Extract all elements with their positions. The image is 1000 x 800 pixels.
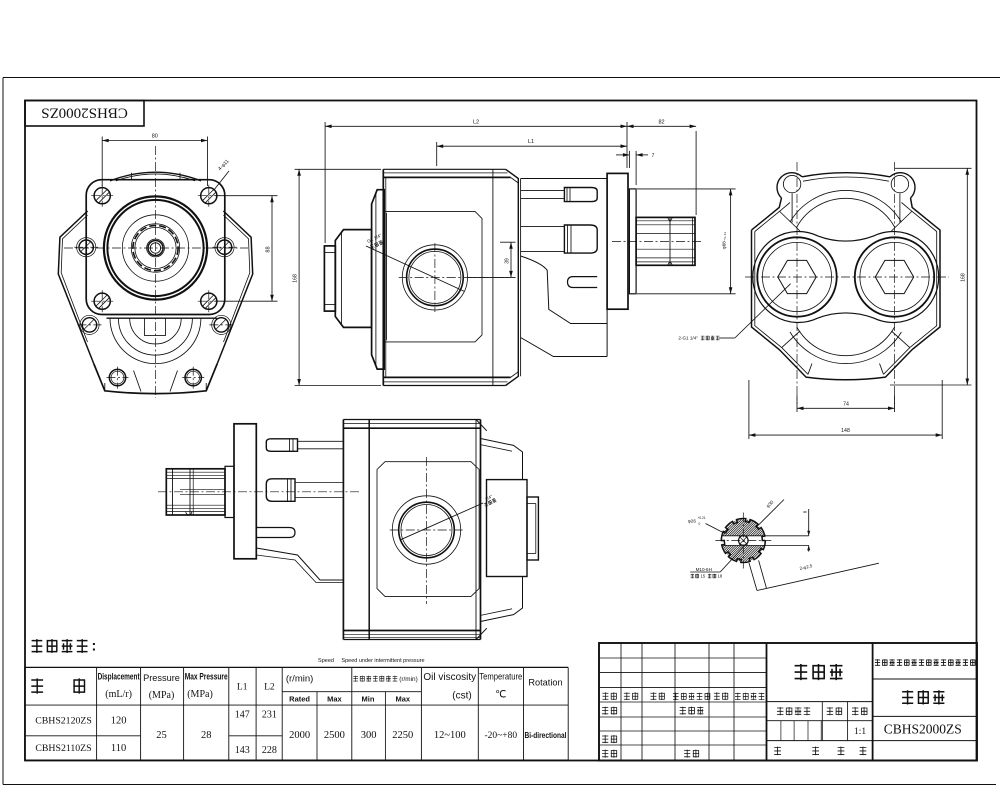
svg-text:CBHS2000ZS: CBHS2000ZS	[884, 722, 962, 737]
svg-text:L1: L1	[528, 139, 534, 145]
svg-text:℃: ℃	[495, 690, 506, 701]
svg-text:Min: Min	[362, 695, 375, 704]
svg-text:Pressure: Pressure	[143, 673, 180, 683]
svg-text:Rated: Rated	[289, 695, 310, 704]
svg-text:(MPa): (MPa)	[149, 690, 175, 701]
svg-text:φ26: φ26	[688, 519, 697, 524]
svg-text:15: 15	[701, 574, 706, 579]
svg-text:88: 88	[265, 246, 271, 252]
svg-text:147: 147	[235, 710, 250, 721]
svg-text:-20~+80: -20~+80	[484, 731, 517, 741]
svg-text:0: 0	[699, 522, 701, 526]
svg-text:L2: L2	[264, 683, 275, 693]
svg-text:Displacement: Displacement	[98, 672, 140, 682]
svg-text:168: 168	[961, 273, 967, 282]
svg-text:1:1: 1:1	[854, 727, 866, 737]
svg-text::: :	[92, 639, 97, 655]
svg-text:Oil viscosity: Oil viscosity	[423, 672, 476, 683]
svg-text:L2: L2	[473, 119, 479, 125]
svg-text:12~100: 12~100	[434, 730, 466, 741]
svg-text:(MPa): (MPa)	[187, 689, 213, 700]
svg-text:CBHS2120ZS: CBHS2120ZS	[35, 715, 92, 726]
svg-text:M10-6H: M10-6H	[696, 567, 712, 572]
svg-text:2-G1 1/4″: 2-G1 1/4″	[678, 336, 698, 341]
svg-text:143: 143	[235, 745, 250, 756]
svg-text:Max: Max	[327, 695, 342, 704]
svg-text:110: 110	[111, 743, 126, 754]
svg-text:CBHS2110ZS: CBHS2110ZS	[35, 743, 91, 754]
svg-text:L1: L1	[237, 683, 248, 693]
svg-text:(mL/r): (mL/r)	[105, 689, 132, 700]
svg-text:Bi-directional: Bi-directional	[525, 731, 567, 740]
svg-text:25: 25	[156, 730, 167, 741]
svg-text:Speed: Speed	[318, 658, 334, 664]
svg-text:39: 39	[504, 258, 510, 264]
svg-text:Max Pressure: Max Pressure	[185, 672, 228, 682]
svg-text:80: 80	[152, 134, 158, 140]
svg-text:8: 8	[802, 510, 807, 513]
svg-text:Temperature: Temperature	[479, 672, 522, 682]
svg-text:Rotation: Rotation	[528, 678, 562, 688]
svg-text:(r/min): (r/min)	[399, 676, 417, 683]
svg-text:74: 74	[843, 401, 849, 407]
svg-text:CBHS2000ZS: CBHS2000ZS	[41, 105, 128, 121]
svg-text:(r/min): (r/min)	[286, 674, 313, 685]
svg-text:28: 28	[201, 730, 212, 741]
svg-text:300: 300	[361, 730, 377, 741]
svg-text:7: 7	[652, 153, 655, 159]
svg-text:+0.21: +0.21	[698, 516, 706, 520]
svg-text:2500: 2500	[324, 730, 345, 741]
svg-text:148: 148	[841, 428, 850, 434]
svg-text:231: 231	[262, 710, 277, 721]
svg-text:82: 82	[658, 119, 664, 125]
svg-text:168: 168	[292, 274, 298, 283]
svg-text:2250: 2250	[392, 730, 413, 741]
svg-text:18: 18	[718, 574, 723, 579]
svg-text:120: 120	[111, 715, 127, 726]
svg-text:Speed under intermittent press: Speed under intermittent pressure	[341, 658, 424, 664]
svg-text:228: 228	[262, 745, 277, 756]
svg-text:2000: 2000	[289, 730, 310, 741]
svg-text:Max: Max	[396, 695, 411, 704]
svg-text:(cst): (cst)	[452, 691, 471, 702]
svg-text:φ88₊₀.₄₃: φ88₊₀.₄₃	[722, 232, 727, 250]
